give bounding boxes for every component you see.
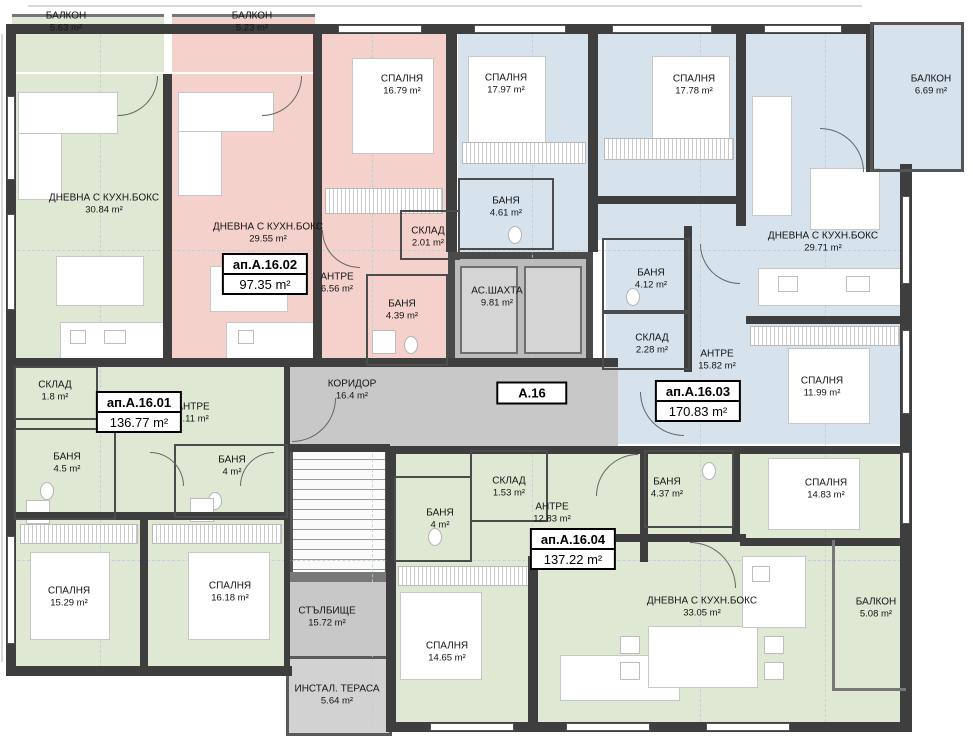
wall-segment [746, 316, 906, 324]
room-label-bath1-03: БАНЯ4.61 m² [490, 196, 522, 219]
furniture-table [56, 256, 144, 306]
unit-card-a16-02: ап.А.16.02 97.35 m² [222, 253, 308, 295]
unit-area: 136.77 m² [98, 413, 180, 431]
furniture-sofa [18, 92, 118, 134]
wall-segment [140, 520, 148, 668]
room-label-bedroom1-01: СПАЛНЯ15.29 m² [48, 586, 90, 609]
facade-line-top [28, 5, 862, 7]
window [430, 723, 514, 731]
wall-segment [313, 24, 322, 366]
room-label-living-03: ДНЕВНА С КУХН.БОКС29.71 m² [768, 231, 878, 254]
furniture-chair [620, 662, 640, 680]
room-label-bath1-04: БАНЯ4 m² [426, 508, 453, 531]
fill-staircase-flights [290, 450, 388, 572]
window [902, 330, 910, 414]
room-label-antre-02: АНТРЕ6.56 m² [320, 272, 353, 295]
room-label-bath2-04: БАНЯ4.37 m² [651, 477, 683, 500]
window [902, 196, 910, 284]
kitchen-hob [104, 330, 126, 344]
balcony-04-rail [832, 540, 835, 690]
elevator-car [460, 266, 518, 354]
kitchen-sink [778, 276, 798, 292]
room-label-balcony-01: БАЛКОН5.63 m² [46, 11, 87, 34]
balcony-04-rail [832, 688, 906, 691]
window [7, 96, 15, 180]
kitchen-hob [846, 276, 870, 292]
room-label-bath-02: БАНЯ4.39 m² [386, 299, 418, 322]
furniture-table [648, 626, 758, 688]
window [338, 25, 422, 33]
wall-segment [740, 538, 906, 546]
room-label-sklad-01: СКЛАД1.8 m² [38, 380, 71, 403]
furniture-bed [400, 592, 482, 680]
furniture-wardrobe [20, 524, 138, 544]
wall-segment [528, 556, 538, 722]
kitchen-sink [752, 566, 770, 582]
room-label-bath2-03: БАНЯ4.12 m² [635, 268, 667, 291]
window [902, 452, 910, 524]
room-label-sklad-03: СКЛАД2.28 m² [635, 333, 668, 356]
window [7, 214, 15, 310]
furniture-table [810, 168, 880, 230]
furniture-wardrobe [462, 142, 586, 164]
room-label-antre-03: АНТРЕ15.82 m² [698, 349, 736, 372]
floor-plan-canvas: БАЛКОН5.63 m² БАЛКОН5.23 m² ДНЕВНА С КУХ… [0, 0, 973, 741]
room-label-balcony-03: БАЛКОН6.69 m² [911, 74, 952, 97]
furniture-wardrobe [398, 566, 534, 586]
balcony-01-rail [12, 14, 164, 17]
unit-id: ап.А.16.03 [657, 382, 739, 402]
furniture-wardrobe [152, 524, 282, 544]
facade-line-left [1, 34, 3, 662]
unit-area: 137.22 m² [532, 550, 614, 568]
unit-id: ап.А.16.02 [224, 255, 306, 275]
kitchen-sink [70, 330, 86, 344]
window [566, 723, 650, 731]
room-label-living-04: ДНЕВНА С КУХН.БОКС33.05 m² [647, 596, 757, 619]
kitchen-sink [238, 330, 254, 344]
furniture-wardrobe [750, 326, 900, 346]
room-label-install-terrace: ИНСТАЛ. ТЕРАСА5.64 m² [295, 684, 380, 707]
room-label-bedroom1-03: СПАЛНЯ17.97 m² [485, 73, 527, 96]
room-label-bath1-01: БАНЯ4.5 m² [53, 452, 80, 475]
unit-area: 97.35 m² [224, 275, 306, 293]
wall-segment [284, 366, 290, 670]
wall-segment [6, 666, 292, 676]
room-label-living-01: ДНЕВНА С КУХН.БОКС30.84 m² [49, 193, 159, 216]
room-label-bedroom-02: СПАЛНЯ16.79 m² [381, 74, 423, 97]
unit-card-a16-04: ап.А.16.04 137.22 m² [530, 528, 616, 570]
window [706, 723, 790, 731]
furniture-bed [468, 56, 546, 152]
fill-under-balcony-04 [836, 690, 906, 722]
room-label-sklad-04: СКЛАД1.53 m² [492, 476, 525, 499]
unit-card-a16-01: ап.А.16.01 136.77 m² [96, 391, 182, 433]
room-label-sklad-02: СКЛАД2.01 m² [411, 226, 444, 249]
wall-segment [163, 74, 172, 366]
staircase-divider [290, 572, 388, 582]
window [474, 25, 566, 33]
furniture-chair [620, 636, 640, 654]
room-label-bedroom2-03: СПАЛНЯ17.78 m² [673, 74, 715, 97]
furniture-chair [764, 662, 784, 680]
room-label-staircase: СТЪЛБИЩЕ15.72 m² [298, 606, 355, 629]
window [764, 25, 842, 33]
room-label-corridor: КОРИДОР16.4 m² [328, 379, 377, 402]
furniture-bed [352, 58, 434, 154]
unit-area: 170.83 m² [657, 402, 739, 420]
block-label: А.16 [496, 382, 567, 405]
wall-segment [598, 196, 746, 204]
room-label-antre-04: АНТРЕ12.83 m² [533, 502, 571, 525]
room-label-bedroom1-04: СПАЛНЯ14.83 m² [805, 478, 847, 501]
room-label-balcony-02: БАЛКОН5.23 m² [232, 11, 273, 34]
unit-id: ап.А.16.04 [532, 530, 614, 550]
furniture-sofa [178, 92, 274, 132]
room-label-bedroom3-03: СПАЛНЯ11.99 m² [801, 376, 843, 399]
room-label-bedroom2-01: СПАЛНЯ16.18 m² [209, 581, 251, 604]
furniture-sofa [752, 96, 792, 216]
window [7, 536, 15, 644]
elevator-car [524, 266, 582, 354]
room-label-elevator-shaft: АС.ШАХТА9.81 m² [471, 286, 522, 309]
room-label-bedroom2-04: СПАЛНЯ14.65 m² [426, 641, 468, 664]
furniture-chair [764, 636, 784, 654]
furniture-wardrobe [604, 138, 734, 160]
room-label-living-02: ДНЕВНА С КУХН.БОКС29.55 m² [213, 222, 323, 245]
wall-segment [12, 358, 618, 367]
unit-id: ап.А.16.01 [98, 393, 180, 413]
wall-segment [284, 444, 390, 452]
wall-segment [588, 24, 598, 252]
room-label-bath2-01: БАНЯ4 m² [218, 455, 245, 478]
room-label-balcony-04: БАЛКОН5.08 m² [856, 597, 897, 620]
balcony-03-outline [870, 22, 964, 172]
window [612, 25, 712, 33]
unit-card-a16-03: ап.А.16.03 170.83 m² [655, 380, 741, 422]
